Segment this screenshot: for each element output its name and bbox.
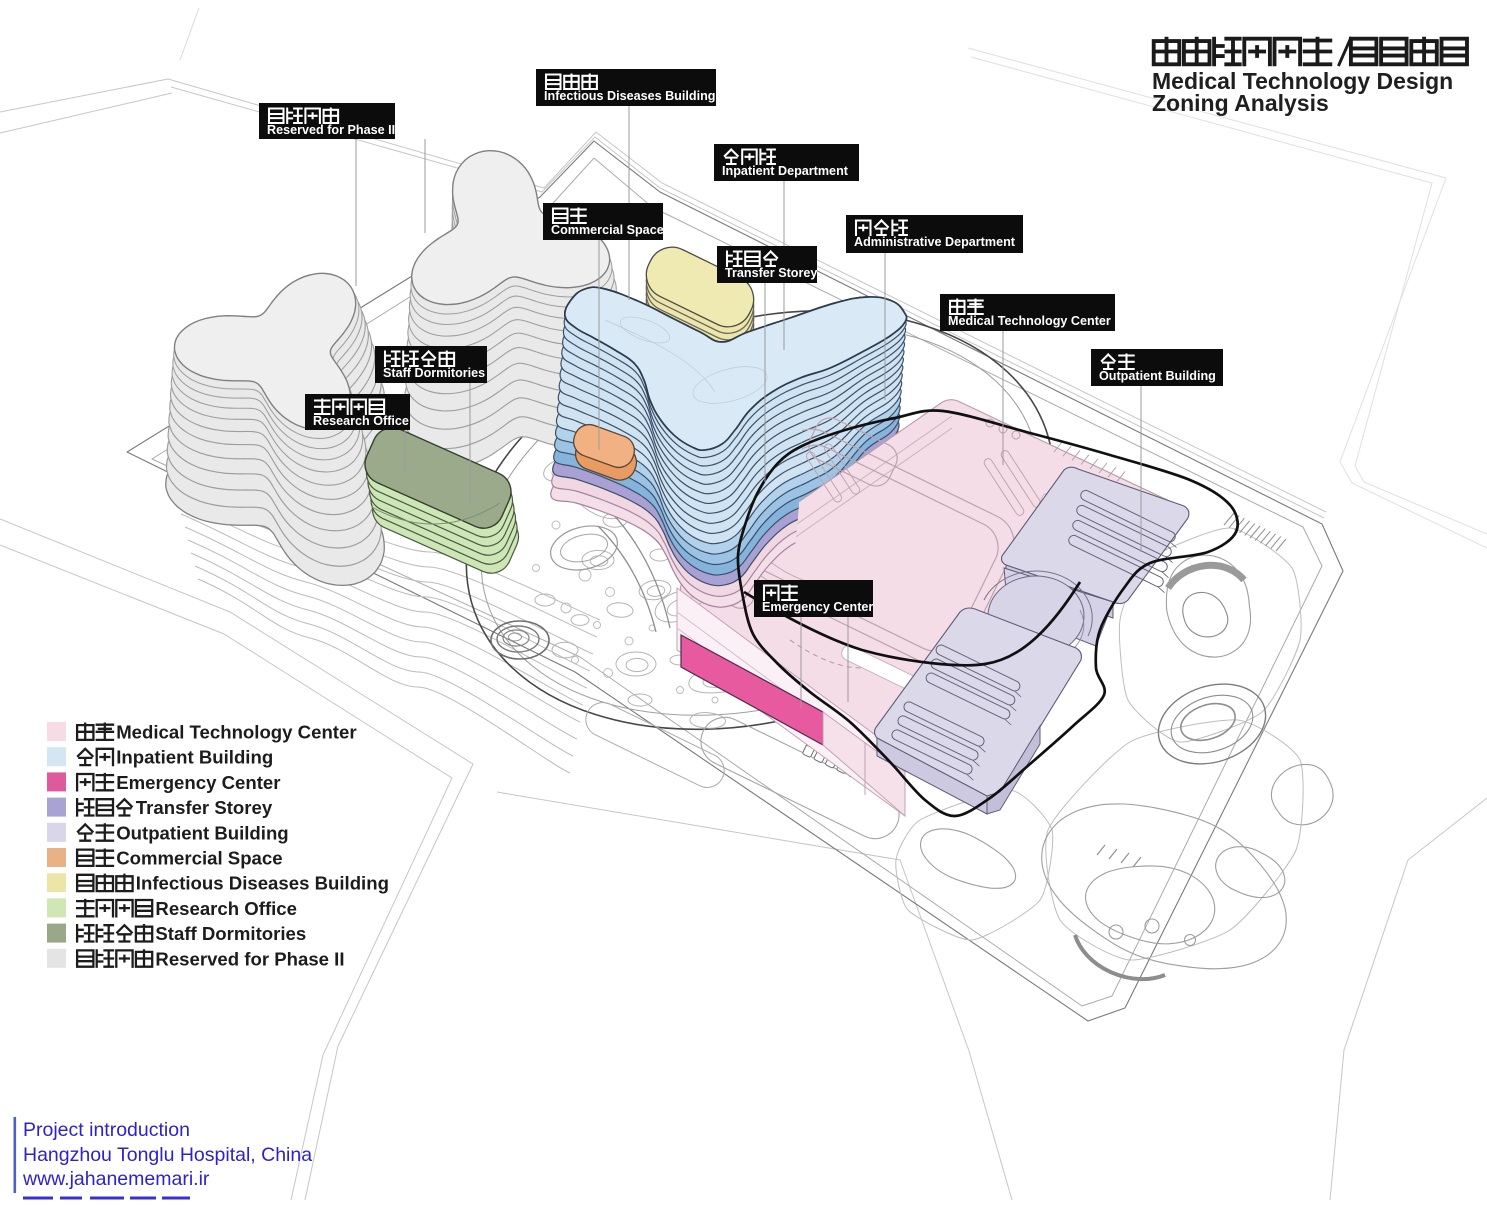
svg-text:Staff Dormitories: Staff Dormitories	[383, 366, 485, 380]
svg-text:Hangzhou Tonglu Hospital, Chin: Hangzhou Tonglu Hospital, China	[23, 1144, 312, 1166]
svg-text:Staff Dormitories: Staff Dormitories	[155, 923, 306, 944]
svg-text:Emergency Center: Emergency Center	[116, 772, 280, 793]
svg-text:Research Office: Research Office	[313, 414, 409, 428]
svg-text:Commercial Space: Commercial Space	[551, 223, 664, 237]
svg-text:Zoning Analysis: Zoning Analysis	[1152, 90, 1329, 116]
svg-text:Medical Technology Center: Medical Technology Center	[948, 314, 1111, 328]
svg-text:Transfer Storey: Transfer Storey	[136, 797, 273, 818]
svg-text:Outpatient Building: Outpatient Building	[116, 822, 288, 843]
svg-text:Administrative Department: Administrative Department	[854, 235, 1016, 249]
svg-text:Outpatient Building: Outpatient Building	[1099, 369, 1216, 383]
svg-text:Reserved for Phase II: Reserved for Phase II	[267, 123, 395, 137]
svg-text:Commercial Space: Commercial Space	[116, 848, 282, 869]
svg-text:Reserved for Phase II: Reserved for Phase II	[155, 948, 344, 969]
svg-text:Emergency Center: Emergency Center	[762, 600, 873, 614]
svg-text:Infectious Diseases Building: Infectious Diseases Building	[136, 873, 389, 894]
svg-text:Inpatient Building: Inpatient Building	[116, 747, 273, 768]
svg-text:Medical Technology Center: Medical Technology Center	[116, 722, 356, 743]
svg-text:Transfer Storey: Transfer Storey	[725, 266, 817, 280]
svg-text:Research Office: Research Office	[155, 898, 297, 919]
svg-text:Infectious Diseases Building: Infectious Diseases Building	[544, 89, 715, 103]
svg-text:Project introduction: Project introduction	[23, 1119, 190, 1141]
svg-text:Inpatient Department: Inpatient Department	[722, 164, 849, 178]
svg-text:www.jahanememari.ir: www.jahanememari.ir	[22, 1168, 210, 1190]
